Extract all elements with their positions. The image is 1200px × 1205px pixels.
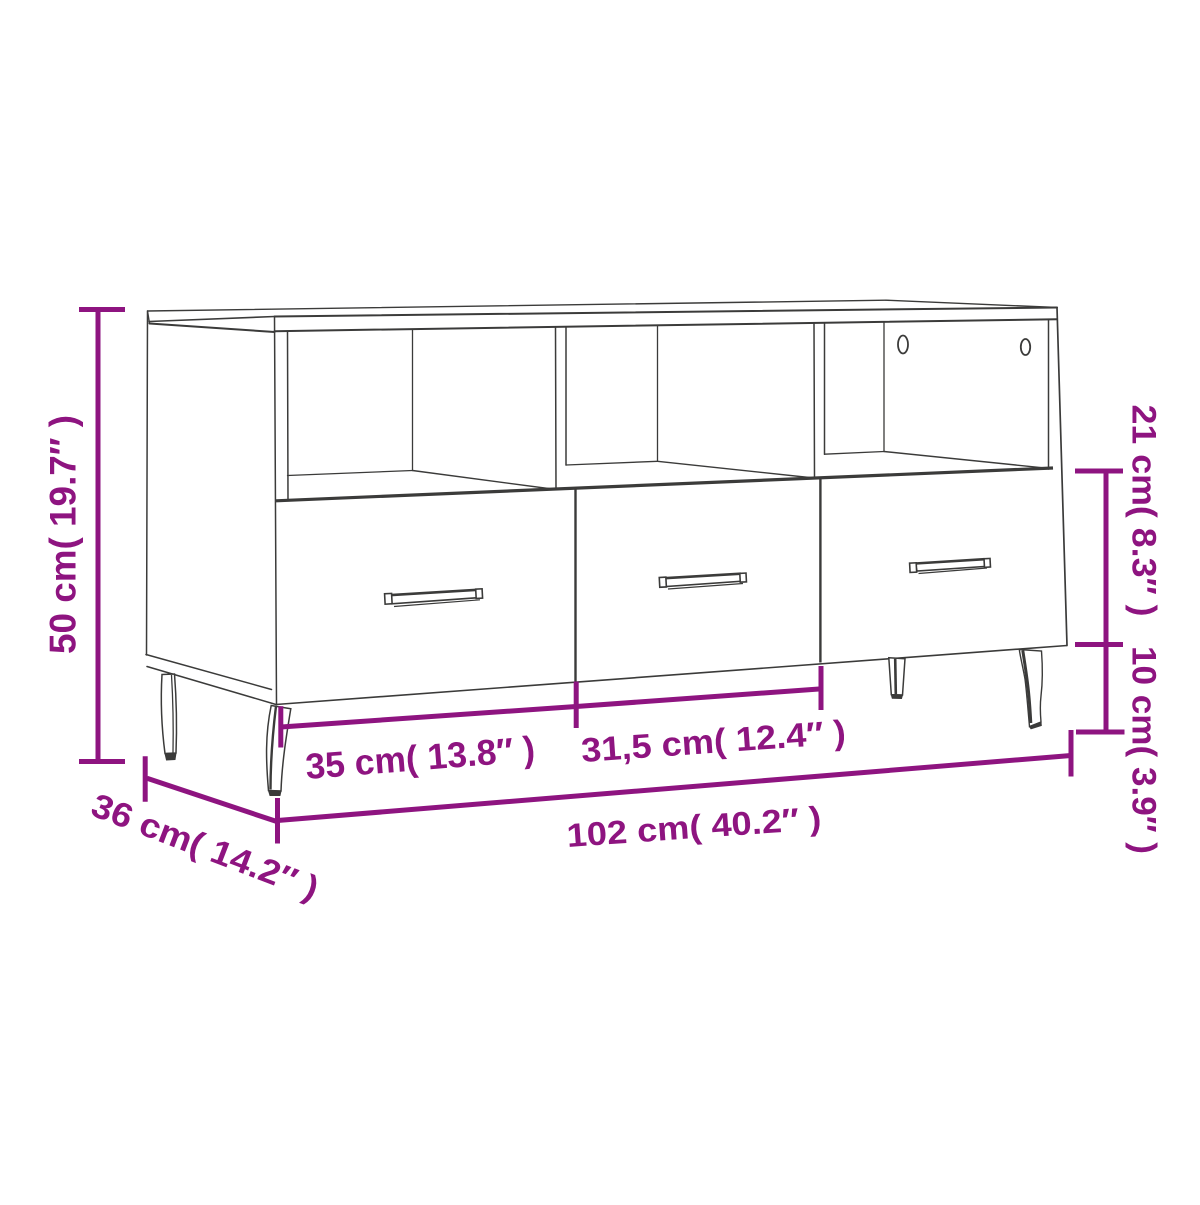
svg-text:10 cm( 3.9″ ): 10 cm( 3.9″ ) [1125,646,1163,854]
svg-text:50 cm( 19.7″ ): 50 cm( 19.7″ ) [43,415,84,654]
svg-text:21 cm( 8.3″ ): 21 cm( 8.3″ ) [1125,405,1163,617]
